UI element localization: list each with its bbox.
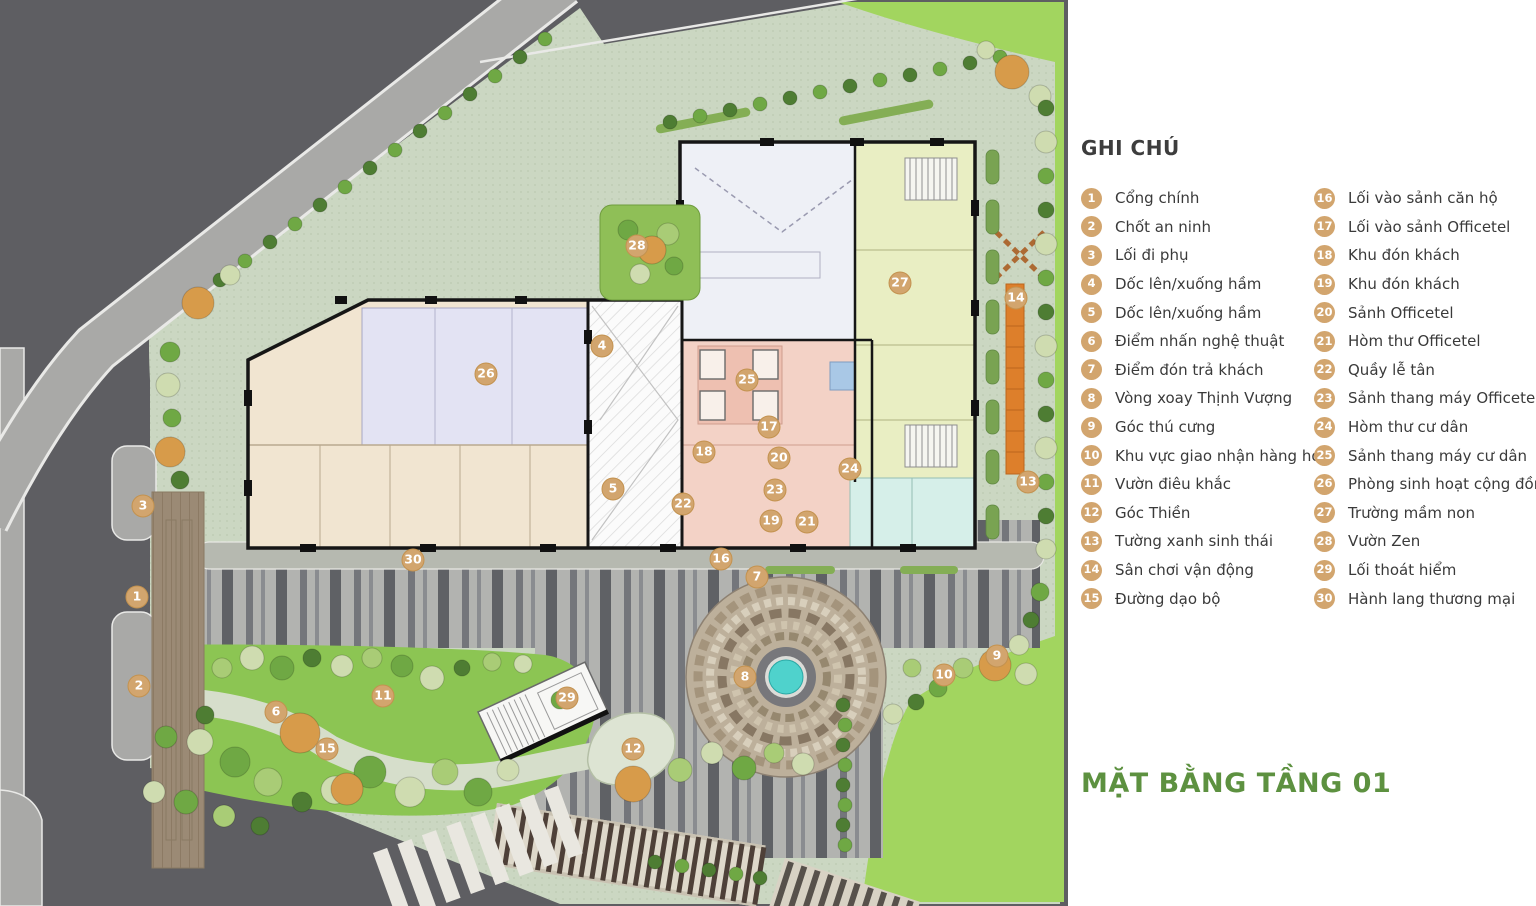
plan-marker-11: 11 bbox=[372, 685, 395, 708]
plan-marker-2: 2 bbox=[128, 675, 151, 698]
legend-item-label: Sảnh thang máy cư dân bbox=[1348, 447, 1527, 465]
legend-item-label: Điểm đón trả khách bbox=[1115, 361, 1264, 379]
legend-column-2: 16Lối vào sảnh căn hộ17Lối vào sảnh Offi… bbox=[1314, 184, 1536, 613]
legend-item-number: 23 bbox=[1314, 388, 1335, 409]
plan-marker-25: 25 bbox=[736, 369, 759, 392]
legend-item-19: 19Khu đón khách bbox=[1314, 270, 1536, 299]
legend-item-11: 11Vườn điêu khắc bbox=[1081, 470, 1314, 499]
legend-item-number: 1 bbox=[1081, 188, 1102, 209]
legend-item-label: Quầy lễ tân bbox=[1348, 361, 1435, 379]
plan-marker-12: 12 bbox=[622, 738, 645, 761]
plan-marker-15: 15 bbox=[316, 738, 339, 761]
legend-item-label: Sân chơi vận động bbox=[1115, 561, 1254, 579]
legend-item-number: 16 bbox=[1314, 188, 1335, 209]
legend-item-label: Lối vào sảnh Officetel bbox=[1348, 218, 1510, 236]
plan-marker-27: 27 bbox=[889, 272, 912, 295]
legend-item-label: Góc thú cưng bbox=[1115, 418, 1215, 436]
plan-marker-26: 26 bbox=[475, 363, 498, 386]
legend-item-16: 16Lối vào sảnh căn hộ bbox=[1314, 184, 1536, 213]
legend-item-25: 25Sảnh thang máy cư dân bbox=[1314, 441, 1536, 470]
plan-marker-20: 20 bbox=[768, 447, 791, 470]
legend-item-number: 29 bbox=[1314, 560, 1335, 581]
plan-marker-8: 8 bbox=[734, 666, 757, 689]
plan-marker-17: 17 bbox=[758, 416, 781, 439]
legend-item-9: 9Góc thú cưng bbox=[1081, 413, 1314, 442]
legend-item-label: Lối thoát hiểm bbox=[1348, 561, 1456, 579]
legend-item-5: 5Dốc lên/xuống hầm bbox=[1081, 298, 1314, 327]
legend-item-label: Tường xanh sinh thái bbox=[1115, 532, 1273, 550]
plan-marker-22: 22 bbox=[672, 493, 695, 516]
legend-item-label: Khu đón khách bbox=[1348, 275, 1460, 293]
legend-item-label: Chốt an ninh bbox=[1115, 218, 1211, 236]
legend-item-number: 25 bbox=[1314, 445, 1335, 466]
plan-marker-23: 23 bbox=[764, 479, 787, 502]
legend-item-number: 30 bbox=[1314, 588, 1335, 609]
legend-item-label: Điểm nhấn nghệ thuật bbox=[1115, 332, 1284, 350]
plan-marker-7: 7 bbox=[746, 566, 769, 589]
legend-item-22: 22Quầy lễ tân bbox=[1314, 356, 1536, 385]
plan-marker-10: 10 bbox=[933, 664, 956, 687]
legend-item-14: 14Sân chơi vận động bbox=[1081, 556, 1314, 585]
plan-marker-3: 3 bbox=[132, 495, 155, 518]
legend-item-label: Khu vực giao nhận hàng hóa bbox=[1115, 447, 1330, 465]
legend-item-label: Dốc lên/xuống hầm bbox=[1115, 275, 1261, 293]
legend-item-27: 27Trường mầm non bbox=[1314, 499, 1536, 528]
legend-item-label: Lối đi phụ bbox=[1115, 246, 1188, 264]
legend-item-number: 7 bbox=[1081, 359, 1102, 380]
legend-item-23: 23Sảnh thang máy Officetel bbox=[1314, 384, 1536, 413]
legend-item-number: 26 bbox=[1314, 474, 1335, 495]
legend-item-label: Vườn Zen bbox=[1348, 532, 1420, 550]
legend-item-1: 1Cổng chính bbox=[1081, 184, 1314, 213]
legend-item-label: Hành lang thương mại bbox=[1348, 590, 1515, 608]
plan-title: MẶT BẰNG TẦNG 01 bbox=[1081, 768, 1391, 799]
legend-item-number: 18 bbox=[1314, 245, 1335, 266]
plan-marker-30: 30 bbox=[402, 549, 425, 572]
legend-item-number: 19 bbox=[1314, 274, 1335, 295]
legend-item-number: 2 bbox=[1081, 216, 1102, 237]
legend-item-number: 6 bbox=[1081, 331, 1102, 352]
plan-marker-16: 16 bbox=[710, 548, 733, 571]
legend-item-number: 13 bbox=[1081, 531, 1102, 552]
legend-item-number: 27 bbox=[1314, 502, 1335, 523]
legend-item-number: 14 bbox=[1081, 560, 1102, 581]
legend-item-number: 9 bbox=[1081, 417, 1102, 438]
legend-item-29: 29Lối thoát hiểm bbox=[1314, 556, 1536, 585]
legend-item-21: 21Hòm thư Officetel bbox=[1314, 327, 1536, 356]
legend-item-3: 3Lối đi phụ bbox=[1081, 241, 1314, 270]
plan-marker-29: 29 bbox=[556, 687, 579, 710]
plan-marker-5: 5 bbox=[602, 478, 625, 501]
plan-marker-9: 9 bbox=[986, 645, 1009, 668]
legend-item-number: 12 bbox=[1081, 502, 1102, 523]
plan-marker-6: 6 bbox=[265, 701, 288, 724]
legend-item-number: 21 bbox=[1314, 331, 1335, 352]
site-plan: 1234567891011121314151617181920212223242… bbox=[0, 0, 1068, 906]
legend-item-label: Khu đón khách bbox=[1348, 246, 1460, 264]
plan-marker-24: 24 bbox=[839, 458, 862, 481]
plan-marker-13: 13 bbox=[1017, 471, 1040, 494]
legend-item-label: Vòng xoay Thịnh Vượng bbox=[1115, 389, 1292, 407]
legend-item-24: 24Hòm thư cư dân bbox=[1314, 413, 1536, 442]
legend-item-label: Lối vào sảnh căn hộ bbox=[1348, 189, 1498, 207]
legend-item-label: Hòm thư Officetel bbox=[1348, 332, 1481, 350]
legend-item-number: 20 bbox=[1314, 302, 1335, 323]
legend-item-number: 3 bbox=[1081, 245, 1102, 266]
legend-item-number: 22 bbox=[1314, 359, 1335, 380]
legend-item-2: 2Chốt an ninh bbox=[1081, 213, 1314, 242]
legend-item-number: 17 bbox=[1314, 216, 1335, 237]
legend-item-label: Đường dạo bộ bbox=[1115, 590, 1220, 608]
plan-marker-19: 19 bbox=[760, 510, 783, 533]
plan-marker-28: 28 bbox=[626, 235, 649, 258]
legend-item-20: 20Sảnh Officetel bbox=[1314, 298, 1536, 327]
legend-item-label: Sảnh Officetel bbox=[1348, 304, 1454, 322]
legend-item-label: Góc Thiền bbox=[1115, 504, 1190, 522]
legend-item-label: Sảnh thang máy Officetel bbox=[1348, 389, 1536, 407]
legend-item-label: Dốc lên/xuống hầm bbox=[1115, 304, 1261, 322]
legend-item-4: 4Dốc lên/xuống hầm bbox=[1081, 270, 1314, 299]
legend-item-label: Vườn điêu khắc bbox=[1115, 475, 1231, 493]
plan-marker-1: 1 bbox=[126, 586, 149, 609]
plan-marker-4: 4 bbox=[591, 335, 614, 358]
legend-item-10: 10Khu vực giao nhận hàng hóa bbox=[1081, 441, 1314, 470]
legend-columns: 1Cổng chính2Chốt an ninh3Lối đi phụ4Dốc … bbox=[1081, 184, 1532, 613]
legend-item-number: 10 bbox=[1081, 445, 1102, 466]
legend-item-number: 24 bbox=[1314, 417, 1335, 438]
legend-item-17: 17Lối vào sảnh Officetel bbox=[1314, 213, 1536, 242]
legend-item-13: 13Tường xanh sinh thái bbox=[1081, 527, 1314, 556]
plan-marker-21: 21 bbox=[796, 511, 819, 534]
legend-item-number: 15 bbox=[1081, 588, 1102, 609]
legend-item-15: 15Đường dạo bộ bbox=[1081, 584, 1314, 613]
legend-item-number: 11 bbox=[1081, 474, 1102, 495]
legend-item-7: 7Điểm đón trả khách bbox=[1081, 356, 1314, 385]
legend-item-number: 4 bbox=[1081, 274, 1102, 295]
legend-title: GHI CHÚ bbox=[1081, 136, 1180, 160]
legend-item-28: 28Vườn Zen bbox=[1314, 527, 1536, 556]
legend-item-label: Trường mầm non bbox=[1348, 504, 1475, 522]
legend-item-30: 30Hành lang thương mại bbox=[1314, 584, 1536, 613]
legend-item-26: 26Phòng sinh hoạt cộng đồng bbox=[1314, 470, 1536, 499]
legend-item-number: 28 bbox=[1314, 531, 1335, 552]
legend-panel: GHI CHÚ 1Cổng chính2Chốt an ninh3Lối đi … bbox=[1068, 0, 1536, 906]
legend-item-18: 18Khu đón khách bbox=[1314, 241, 1536, 270]
legend-item-8: 8Vòng xoay Thịnh Vượng bbox=[1081, 384, 1314, 413]
legend-item-label: Phòng sinh hoạt cộng đồng bbox=[1348, 475, 1536, 493]
legend-item-label: Cổng chính bbox=[1115, 189, 1199, 207]
legend-item-6: 6Điểm nhấn nghệ thuật bbox=[1081, 327, 1314, 356]
legend-column-1: 1Cổng chính2Chốt an ninh3Lối đi phụ4Dốc … bbox=[1081, 184, 1314, 613]
legend-item-12: 12Góc Thiền bbox=[1081, 499, 1314, 528]
legend-item-number: 5 bbox=[1081, 302, 1102, 323]
site-plan-drawing bbox=[0, 0, 1068, 906]
plan-marker-14: 14 bbox=[1005, 287, 1028, 310]
plan-marker-18: 18 bbox=[693, 441, 716, 464]
legend-item-label: Hòm thư cư dân bbox=[1348, 418, 1468, 436]
legend-item-number: 8 bbox=[1081, 388, 1102, 409]
